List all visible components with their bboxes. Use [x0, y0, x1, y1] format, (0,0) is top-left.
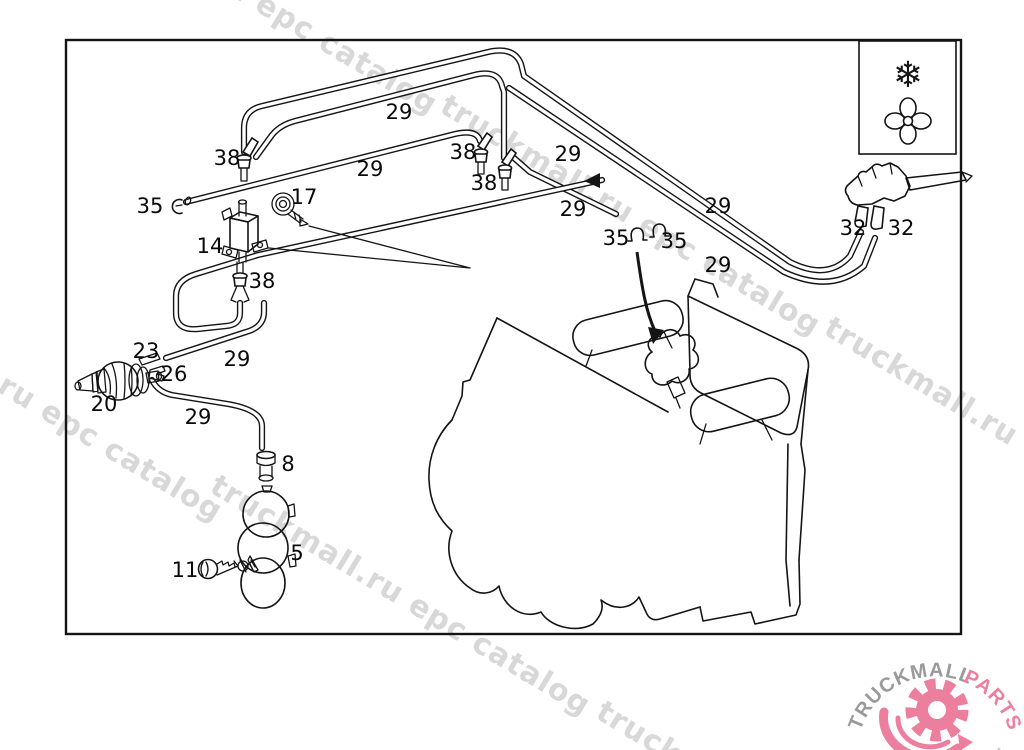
hose-29-bottom: [152, 380, 262, 448]
clip-23: [139, 353, 160, 365]
vacuum-element-5: [238, 486, 296, 608]
hose-29-inner-branch: [256, 73, 504, 158]
diagram-border: [66, 40, 961, 634]
legend-box: ❄: [859, 41, 956, 154]
clip-35-right: [650, 224, 669, 237]
connector-38-d: [231, 262, 249, 302]
hose-29-middle: [186, 133, 480, 202]
grommet-8: [257, 452, 275, 482]
engine-outline: [429, 279, 809, 628]
clip-35-mid: [628, 228, 647, 241]
hose-29-right-diagonal: [509, 88, 875, 282]
hose-29-lower-left: [166, 303, 264, 358]
hose-29-solenoid-run: [176, 180, 602, 329]
snowflake-icon: ❄: [893, 55, 923, 96]
screw-11: [199, 560, 239, 579]
logo-text-accent: PARTS: [961, 666, 1024, 734]
truckmall-logo: TRUCKMALL PARTS: [840, 638, 1024, 750]
pump-20: [75, 362, 162, 400]
gear-icon: [911, 684, 973, 750]
valve-32-assembly: [846, 163, 973, 229]
catalog-page: truckmall.ru epc catalog truckmall.ru ep…: [0, 0, 1024, 750]
pointer-arrow: [637, 252, 664, 344]
